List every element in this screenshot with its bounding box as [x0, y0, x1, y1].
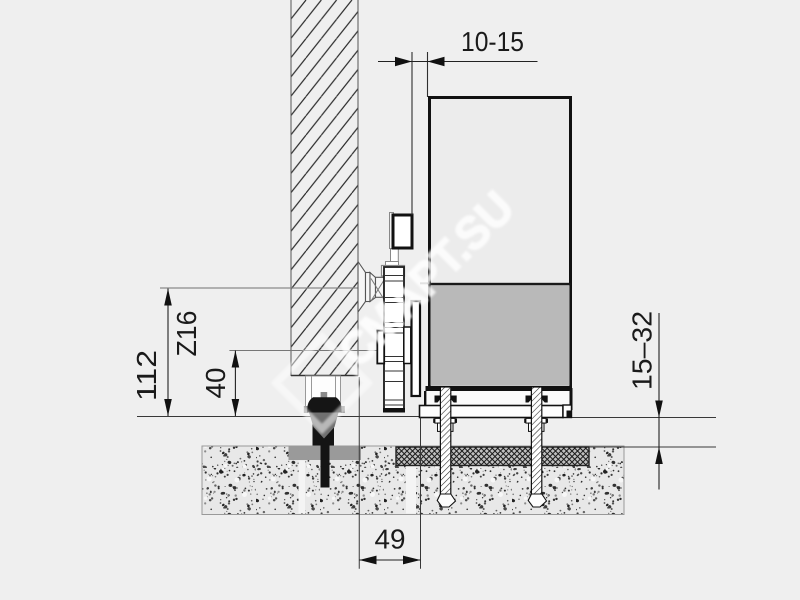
svg-text:Z16: Z16 — [171, 311, 202, 357]
svg-text:10-15: 10-15 — [461, 26, 524, 57]
svg-text:15–32: 15–32 — [627, 311, 658, 390]
svg-text:112: 112 — [131, 350, 162, 401]
svg-text:40: 40 — [200, 368, 231, 399]
svg-text:49: 49 — [374, 523, 405, 554]
